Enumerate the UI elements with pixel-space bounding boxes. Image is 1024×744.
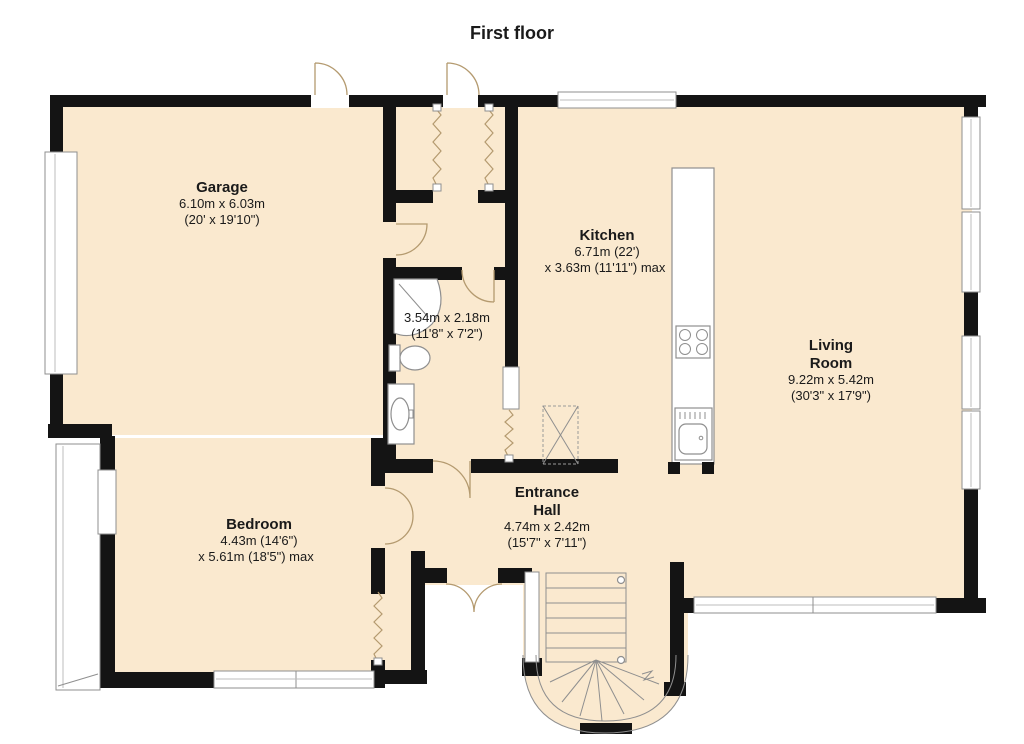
stair-newel-post: [618, 577, 625, 584]
living-room-label-2: Room: [810, 355, 853, 372]
floorplan-canvas: First floor Garage 6.10m x 6.03m (20' x …: [0, 0, 1024, 744]
bathroom-dim-imperial: (11'8" x 7'2"): [411, 326, 483, 341]
wall-bedroom-left-top: [100, 436, 115, 472]
front-top-door-opening: [443, 95, 478, 108]
entrance-dim-imperial: (15'7" x 7'11"): [508, 535, 587, 550]
kitchen-living-floor: [512, 100, 972, 466]
wall-lobby-inner-left: [386, 190, 433, 203]
garage-door-opening: [45, 152, 77, 374]
entrance-dim-metric: 4.74m x 2.42m: [504, 519, 590, 534]
wall-bedroom-right-top: [371, 438, 385, 488]
kitchen-dim-1: 6.71m (22'): [574, 244, 639, 259]
kitchen-label: Kitchen: [579, 227, 634, 244]
zigzag-jamb: [433, 104, 441, 111]
wall-right-bottom: [964, 486, 978, 613]
stair-newel-post: [618, 657, 625, 664]
wall-right-pier: [964, 290, 978, 338]
wall-entrance-bottom-left: [425, 568, 447, 583]
front-double-door-swing: [446, 584, 502, 612]
wall-living-bottom-right: [934, 598, 986, 613]
bedroom-door-opening: [371, 486, 385, 548]
wall-bedroom-left-bottom: [100, 533, 115, 681]
bay-left-window: [525, 572, 539, 662]
bathroom-dim-metric: 3.54m x 2.18m: [404, 310, 490, 325]
wall-bathroom-top: [383, 267, 463, 280]
basin-icon: [391, 398, 409, 430]
wall-top-lobby-left: [348, 95, 443, 107]
bedroom-left-window: [98, 470, 116, 534]
bedroom-label: Bedroom: [226, 516, 292, 533]
wall-entrance-top-left: [383, 459, 433, 473]
page-title: First floor: [470, 23, 554, 43]
zigzag-jamb: [505, 455, 513, 462]
wall-stair-living-divider: [670, 562, 684, 692]
bathroom-kitchen-opening: [503, 367, 519, 409]
wall-right-top: [964, 95, 978, 120]
wall-bedroom-bottom: [100, 672, 218, 688]
garage-dim-metric: 6.10m x 6.03m: [179, 196, 265, 211]
bedroom-dim-2: x 5.61m (18'5") max: [198, 549, 314, 564]
garage-ext-door-swing: [315, 63, 347, 95]
counter-post-right: [702, 462, 714, 474]
counter-post-left: [668, 462, 680, 474]
living-lower-floor: [683, 460, 972, 610]
wall-bathroom-top-stub: [493, 267, 505, 280]
entrance-hall-label-1: Entrance: [515, 484, 579, 501]
stair-bay-floor: [523, 572, 688, 733]
wall-bedroom-right-mid: [371, 546, 385, 594]
zigzag-jamb: [485, 104, 493, 111]
garage-label: Garage: [196, 179, 248, 196]
living-dim-metric: 9.22m x 5.42m: [788, 372, 874, 387]
wall-bathroom-right: [505, 203, 518, 370]
bedroom-dim-1: 4.43m (14'6"): [220, 533, 297, 548]
entrance-hall-label-2: Hall: [533, 502, 561, 519]
toilet-icon: [400, 346, 430, 370]
bathroom-door-opening: [462, 267, 494, 280]
floorplan: First floor Garage 6.10m x 6.03m (20' x …: [0, 0, 1024, 744]
zigzag-jamb: [374, 658, 382, 665]
garage-ext-door-opening: [311, 95, 349, 108]
wall-kitchen-left-upper: [505, 107, 518, 205]
front-top-door-swing: [447, 63, 479, 95]
kitchen-dim-2: x 3.63m (11'11") max: [545, 260, 666, 275]
living-room-label-1: Living: [809, 337, 853, 354]
garage-corridor-door-opening: [383, 222, 396, 258]
wall-left-upper: [50, 95, 63, 155]
toilet-cistern: [389, 345, 400, 371]
garage-floor: [56, 100, 386, 435]
zigzag-jamb: [485, 184, 493, 191]
wall-top-living: [674, 95, 986, 107]
wall-top-garage: [50, 95, 312, 107]
living-dim-imperial: (30'3" x 17'9"): [791, 388, 871, 403]
garage-dim-imperial: (20' x 19'10"): [184, 212, 259, 227]
zigzag-jamb: [433, 184, 441, 191]
wall-garage-bottom: [48, 424, 112, 438]
wall-garage-right-mid: [383, 203, 396, 225]
